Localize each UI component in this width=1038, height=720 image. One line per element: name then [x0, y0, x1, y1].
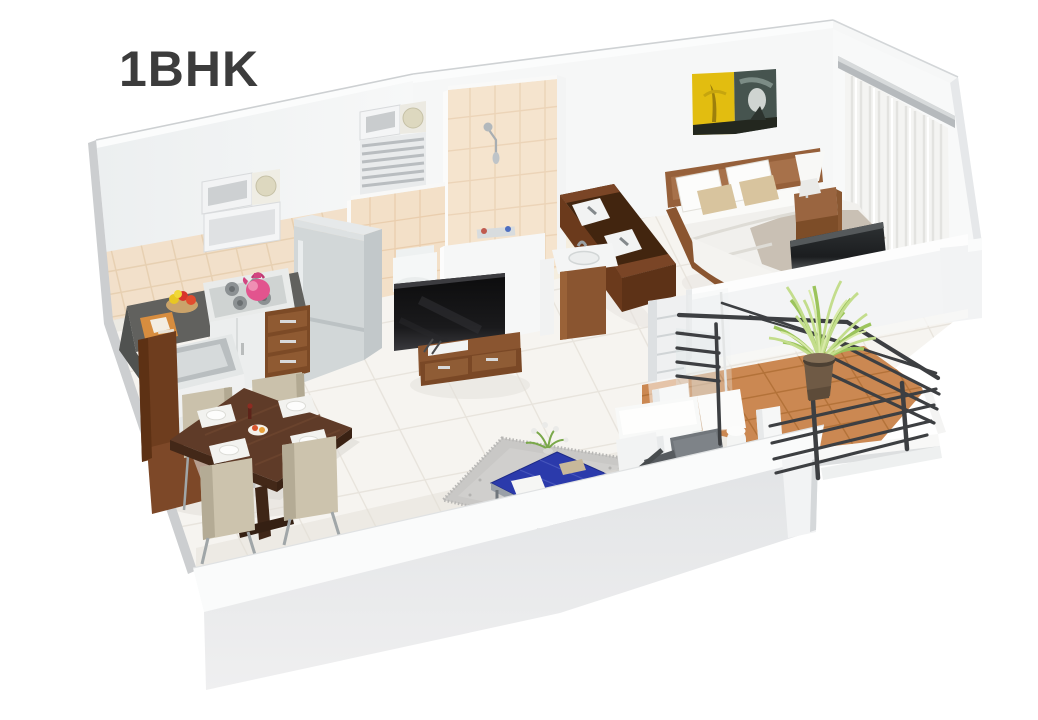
svg-text:1BHK: 1BHK [119, 41, 259, 97]
